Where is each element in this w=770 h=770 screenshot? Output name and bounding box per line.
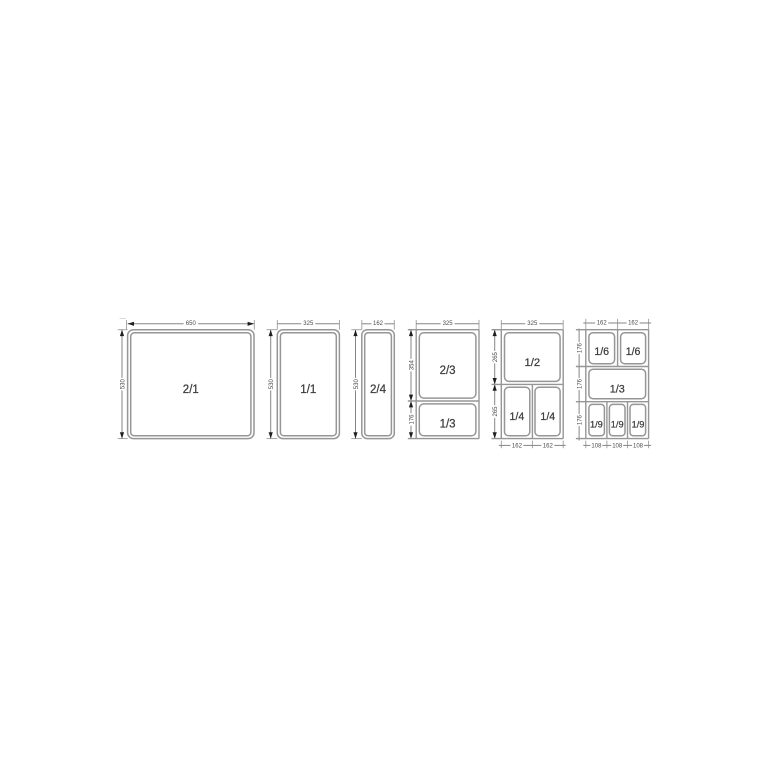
svg-text:1/1: 1/1 bbox=[300, 384, 316, 396]
svg-text:162: 162 bbox=[628, 321, 639, 327]
svg-text:650: 650 bbox=[186, 321, 197, 327]
svg-text:1/9: 1/9 bbox=[632, 420, 645, 430]
svg-text:354: 354 bbox=[409, 360, 415, 371]
svg-text:162: 162 bbox=[597, 321, 608, 327]
svg-text:1/6: 1/6 bbox=[594, 346, 609, 358]
svg-text:1/3: 1/3 bbox=[440, 419, 456, 431]
svg-text:2/3: 2/3 bbox=[440, 365, 456, 377]
svg-text:176: 176 bbox=[409, 414, 415, 425]
svg-text:325: 325 bbox=[443, 321, 454, 327]
svg-text:2/4: 2/4 bbox=[370, 384, 387, 396]
svg-text:1/3: 1/3 bbox=[610, 384, 625, 396]
svg-text:530: 530 bbox=[269, 379, 275, 390]
svg-text:325: 325 bbox=[303, 321, 314, 327]
svg-text:108: 108 bbox=[633, 444, 644, 450]
svg-text:1/9: 1/9 bbox=[590, 420, 603, 430]
svg-text:108: 108 bbox=[612, 444, 623, 450]
svg-text:2/1: 2/1 bbox=[183, 384, 199, 396]
svg-text:1/6: 1/6 bbox=[626, 346, 641, 358]
svg-text:530: 530 bbox=[354, 379, 360, 390]
svg-text:1/9: 1/9 bbox=[611, 420, 624, 430]
svg-text:1/4: 1/4 bbox=[510, 411, 525, 423]
svg-text:265: 265 bbox=[493, 406, 499, 417]
svg-text:530: 530 bbox=[120, 379, 126, 390]
svg-text:162: 162 bbox=[512, 444, 523, 450]
svg-text:162: 162 bbox=[543, 444, 554, 450]
svg-text:265: 265 bbox=[493, 351, 499, 362]
svg-text:176: 176 bbox=[578, 342, 584, 353]
svg-text:162: 162 bbox=[373, 321, 384, 327]
svg-text:176: 176 bbox=[578, 414, 584, 425]
svg-text:325: 325 bbox=[527, 321, 538, 327]
svg-text:1/2: 1/2 bbox=[524, 357, 540, 369]
svg-text:1/4: 1/4 bbox=[540, 411, 555, 423]
svg-text:108: 108 bbox=[591, 444, 602, 450]
svg-text:176: 176 bbox=[578, 378, 584, 389]
